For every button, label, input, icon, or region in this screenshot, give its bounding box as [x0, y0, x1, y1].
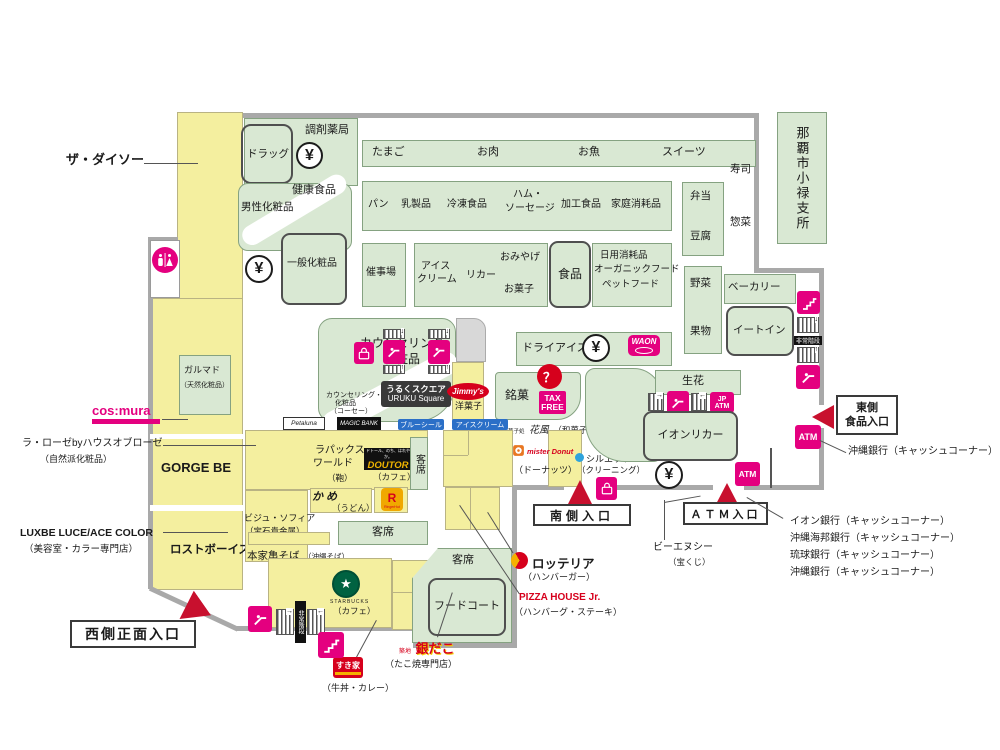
stairs-down-icon: ↓: [797, 317, 819, 333]
municipal-office: 那覇市小禄支所: [777, 112, 827, 244]
silhouette-sub-label: （クリーニング）: [577, 464, 645, 476]
dept-sushi-label: 寿司: [730, 163, 751, 176]
blueseal-label-2: アイスクリーム: [452, 419, 508, 430]
dept-fruit-label: 果物: [690, 325, 711, 338]
doutor-slogan: ドトール、のち、はれやか。: [364, 448, 412, 460]
dept-tofu-label: 豆腐: [690, 230, 711, 243]
dept-pharmacy-label: 調剤薬局: [305, 124, 349, 138]
hanafu-name: 花風: [529, 425, 549, 436]
toilet-icon: [152, 247, 178, 273]
connector-line: [144, 163, 198, 164]
counter-divider: [443, 455, 468, 456]
dept-flower-label: 生花: [682, 375, 704, 389]
south-entrance-label: 南側入口: [550, 507, 614, 524]
bank-list-item: 沖縄銀行（キャッシュコーナー）: [790, 567, 940, 580]
jimmys-logo: Jimmy's: [447, 383, 489, 400]
stairs-up-icon: ↑: [383, 365, 405, 374]
connector-line: [163, 445, 256, 446]
dept-meika-label: 銘菓: [505, 388, 529, 403]
stairs-down-icon: ↓: [428, 329, 450, 339]
service-block: [456, 318, 486, 362]
yen-service-icon: ¥: [582, 334, 610, 362]
stairs-icon: →: [276, 609, 294, 635]
dept-pet-label: ペットフード: [602, 279, 659, 291]
cosmura-bar: [92, 419, 160, 424]
gindaco-logo: 築地 銀だこ: [399, 638, 454, 658]
atm-icon: ATM: [735, 462, 760, 486]
lapax-label-1: ラパックス: [315, 445, 365, 458]
udon-sub-label: （うどん）: [332, 502, 375, 514]
stairs-icon: [318, 632, 344, 658]
bank-list-item: 沖縄海邦銀行（キャッシュコーナー）: [790, 533, 960, 546]
bank-list-item: イオン銀行（キャッシュコーナー）: [790, 516, 950, 529]
uruku-square-label-en: URUKU Square: [388, 394, 444, 404]
blueseal-label-1: ブルーシール: [398, 419, 444, 430]
tax-free-label-2: FREE: [541, 403, 564, 412]
gorge-be-label: GORGE BE: [161, 460, 231, 476]
stairs-up-icon: ↑: [797, 347, 819, 363]
connector-line: [163, 532, 228, 533]
tenant-divider: [150, 434, 243, 439]
lapax-label-3: （鞄）: [327, 472, 353, 484]
silhouette-icon: [575, 453, 584, 462]
south-entrance-sign: 南側入口: [533, 504, 631, 526]
honke-counter: [248, 532, 330, 545]
dept-bakery-label: ベーカリー: [728, 281, 781, 294]
wall-annex-top: [754, 268, 824, 273]
magic-bank-label: MAGIC BANK: [340, 421, 378, 427]
lost-boys-label: ロストボーイズ: [170, 543, 250, 557]
atm-label: ATM: [799, 433, 818, 442]
misdo-logo: [512, 443, 525, 462]
floor-map: ドラッグ 調剤薬局 ¥ たまご お肉 お魚 スイーツ パン 乳製品 冷凍食品 ハ…: [0, 0, 1000, 750]
dept-ham-label-2: ソーセージ: [505, 203, 555, 216]
doutor-logo-label: DOUTOR: [368, 460, 409, 471]
dept-sweets-label: スイーツ: [662, 146, 706, 160]
lotteria-logo: [511, 552, 528, 569]
question-icon: ？: [537, 364, 562, 389]
food-court-label: フードコート: [434, 600, 500, 614]
escalator-icon: [428, 340, 450, 364]
dept-bread-label: パン: [368, 199, 389, 212]
dept-liquor-label: リカー: [466, 270, 496, 283]
dept-vegetable-label: 野菜: [690, 277, 711, 290]
dept-health-label: 健康食品: [292, 184, 336, 198]
starbucks-star: ★: [340, 576, 352, 592]
dept-processed-label: 加工食品: [561, 199, 601, 212]
doutor-logo: ドトール、のち、はれやか。 DOUTOR: [364, 448, 412, 470]
bank-list-item: 琉球銀行（キャッシュコーナー）: [790, 550, 940, 563]
dept-organic-label: オーガニックフード: [594, 264, 680, 276]
gindaco-sub-label: （たこ焼専門店）: [385, 657, 457, 670]
seats-strip: 客席: [410, 437, 428, 490]
stairs-up-icon: ↑: [428, 365, 450, 374]
stairs-down-icon: ↓: [383, 329, 405, 339]
cosmura-logo: cos:mura: [92, 404, 160, 424]
ringerhut-r: R: [388, 491, 397, 505]
sukiya-logo: すき家: [333, 657, 363, 678]
east-entrance-label-2: 食品入口: [845, 415, 889, 429]
aeon-liquor-area: イオンリカー: [643, 411, 738, 461]
jp-atm-icon: JP ATM: [710, 392, 734, 413]
misdo-sub-label: （ドーナッツ）: [514, 463, 577, 476]
petaluna-sign: Petaluna: [283, 417, 325, 430]
dept-fish-label: お魚: [578, 146, 600, 160]
yen-service-icon: ¥: [296, 142, 323, 169]
dept-aeon-liquor-label: イオンリカー: [658, 429, 724, 443]
dept-event-label: 催事場: [366, 267, 396, 280]
dept-food-label: 食品: [558, 267, 582, 282]
dept-eat-in-label: イートイン: [733, 324, 786, 337]
uruku-square-label-jp: うるくスクエア: [386, 384, 446, 394]
starbucks-sub-label: （カフェ）: [333, 605, 376, 617]
atm-label: ATM: [739, 470, 757, 479]
yen-service-icon: ¥: [245, 255, 273, 283]
jp-atm-label-1: JP: [718, 396, 727, 403]
atm-icon: ATM: [795, 425, 821, 449]
uruku-square-sign: うるくスクエア URUKU Square: [381, 381, 451, 407]
emergency-stairs-text: 非常階段: [296, 610, 305, 634]
waon-logo-label: WAON: [632, 338, 657, 346]
dept-household-label: 家庭消耗品: [611, 199, 661, 212]
misdo-name: mister Donut: [527, 447, 573, 456]
connector-line: [664, 500, 665, 540]
sukiya-sub-label: （牛丼・カレー）: [322, 681, 394, 694]
escalator-icon: [796, 365, 820, 389]
sukiya-band: [335, 672, 361, 675]
wall-right-upper: [754, 113, 759, 273]
tenant-divider: [150, 505, 243, 511]
misdo-block: [443, 430, 513, 487]
coin-locker-icon: [596, 477, 617, 500]
luxbe-sub-label: （美容室・カラー専門店）: [24, 541, 138, 555]
connector-line: [487, 512, 513, 553]
daiso-area: [177, 112, 243, 302]
larose-sub-label: （自然派化粧品）: [40, 452, 112, 465]
ringerhut-logo: R RingerHut: [381, 488, 403, 511]
atm-entrance-sign: ＡＴＭ入口: [683, 502, 768, 525]
east-entrance-sign: 東側 食品入口: [836, 395, 898, 435]
dept-egg-label: たまご: [372, 146, 405, 160]
connector-line: [162, 419, 188, 420]
dept-dairy-label: 乳製品: [401, 199, 431, 212]
food-area: 食品: [549, 241, 591, 308]
blueseal-text-1: ブルーシール: [400, 420, 442, 430]
cosmura-name: cos:mura: [92, 404, 160, 417]
dept-deli-label: 惣菜: [730, 216, 751, 229]
jp-atm-label-2: ATM: [715, 403, 730, 410]
bnc-label: ビーエヌシー: [653, 542, 713, 555]
se ats-label: 客席: [372, 526, 394, 540]
seats-box: 客席: [338, 521, 428, 545]
stairs-icon: [797, 291, 820, 314]
magic-bank-sign: MAGIC BANK: [337, 417, 381, 430]
counter-divider: [468, 430, 469, 455]
pizza-house-sub-label: （ハンバーグ・ステーキ）: [514, 605, 622, 618]
garumado-sub-label: （天然化粧品）: [180, 380, 229, 390]
emergency-stairs-label: 非常階段: [295, 601, 306, 643]
luxbe-label: LUXBE LUCE/ACE COLOR: [20, 527, 153, 540]
municipal-office-label: 那覇市小禄支所: [793, 126, 812, 231]
lapax-label-2: ワールド: [313, 458, 353, 471]
pizza-house-name: PIZZA HOUSE Jr.: [519, 592, 600, 603]
garumado-label: ガルマド: [184, 365, 220, 376]
jimmys-sub-label: 洋菓子: [455, 401, 482, 412]
question-mark: ？: [543, 367, 556, 386]
dept-drug-label: ドラッグ: [247, 148, 289, 161]
ringerhut-name: RingerHut: [384, 505, 400, 509]
daiso-label: ザ・ダイソー: [66, 152, 144, 168]
gindaco-prefix: 築地: [399, 649, 411, 655]
stairs-icon: →: [648, 393, 664, 411]
dept-daily-label: 日用消耗品: [600, 250, 648, 262]
sukiya-name: すき家: [336, 660, 360, 671]
gindaco-name: 銀だこ: [415, 641, 454, 656]
bnc-sub-label: （宝くじ）: [668, 556, 711, 568]
donut-icon: [512, 443, 525, 457]
west-entrance-label: 西側正面入口: [85, 624, 181, 644]
escalator-icon: [248, 606, 272, 632]
jimmys-logo-label: Jimmy's: [452, 387, 484, 396]
wall-atm-alcove: [770, 448, 772, 488]
bijou-label: ビジュ・ソフィア: [244, 513, 315, 524]
atm-entrance-label: ＡＴＭ入口: [691, 506, 761, 522]
lotteria-sub-label: （ハンバーガー）: [523, 570, 595, 583]
dept-ice-label-1: アイス: [421, 261, 450, 274]
dept-souvenir-label: おみやげ: [500, 252, 540, 265]
waon-logo: WAON: [628, 335, 660, 356]
dept-meat-label: お肉: [477, 146, 499, 160]
dept-ham-label-1: ハム・: [513, 189, 543, 202]
blueseal-text-2: アイスクリーム: [456, 420, 505, 430]
escalator-icon: [383, 340, 405, 364]
emergency-stairs-label: 非常階段: [794, 336, 822, 345]
stairs-icon: ←: [691, 393, 707, 411]
dept-bento-label: 弁当: [690, 190, 711, 203]
okinawa-bank-note: 沖縄銀行（キャッシュコーナー）: [848, 446, 998, 459]
petaluna-label: Petaluna: [291, 420, 317, 427]
coin-locker-icon: [354, 342, 374, 364]
dept-mens-label: 男性化粧品: [241, 201, 294, 214]
seats-label: 客席: [412, 454, 427, 474]
yen-service-icon: ¥: [655, 461, 683, 489]
dept-confectionery-label: お菓子: [504, 284, 534, 297]
dept-frozen-label: 冷凍食品: [447, 199, 487, 212]
seats-label: 客席: [452, 554, 474, 568]
west-entrance-sign: 西側正面入口: [70, 620, 196, 648]
waon-logo-swoosh: [635, 347, 653, 354]
starbucks-logo: ★: [332, 570, 360, 598]
east-entrance-label-1: 東側: [856, 401, 878, 415]
dept-general-cosme-label: 一般化粧品: [287, 258, 337, 271]
tax-free-sign: TAX FREE: [539, 391, 566, 414]
kose-label-3: （コーセー）: [330, 406, 372, 416]
dept-ice-label-2: クリーム: [417, 274, 457, 287]
larose-label: ラ・ローゼbyハウスオブローゼ: [22, 438, 163, 451]
